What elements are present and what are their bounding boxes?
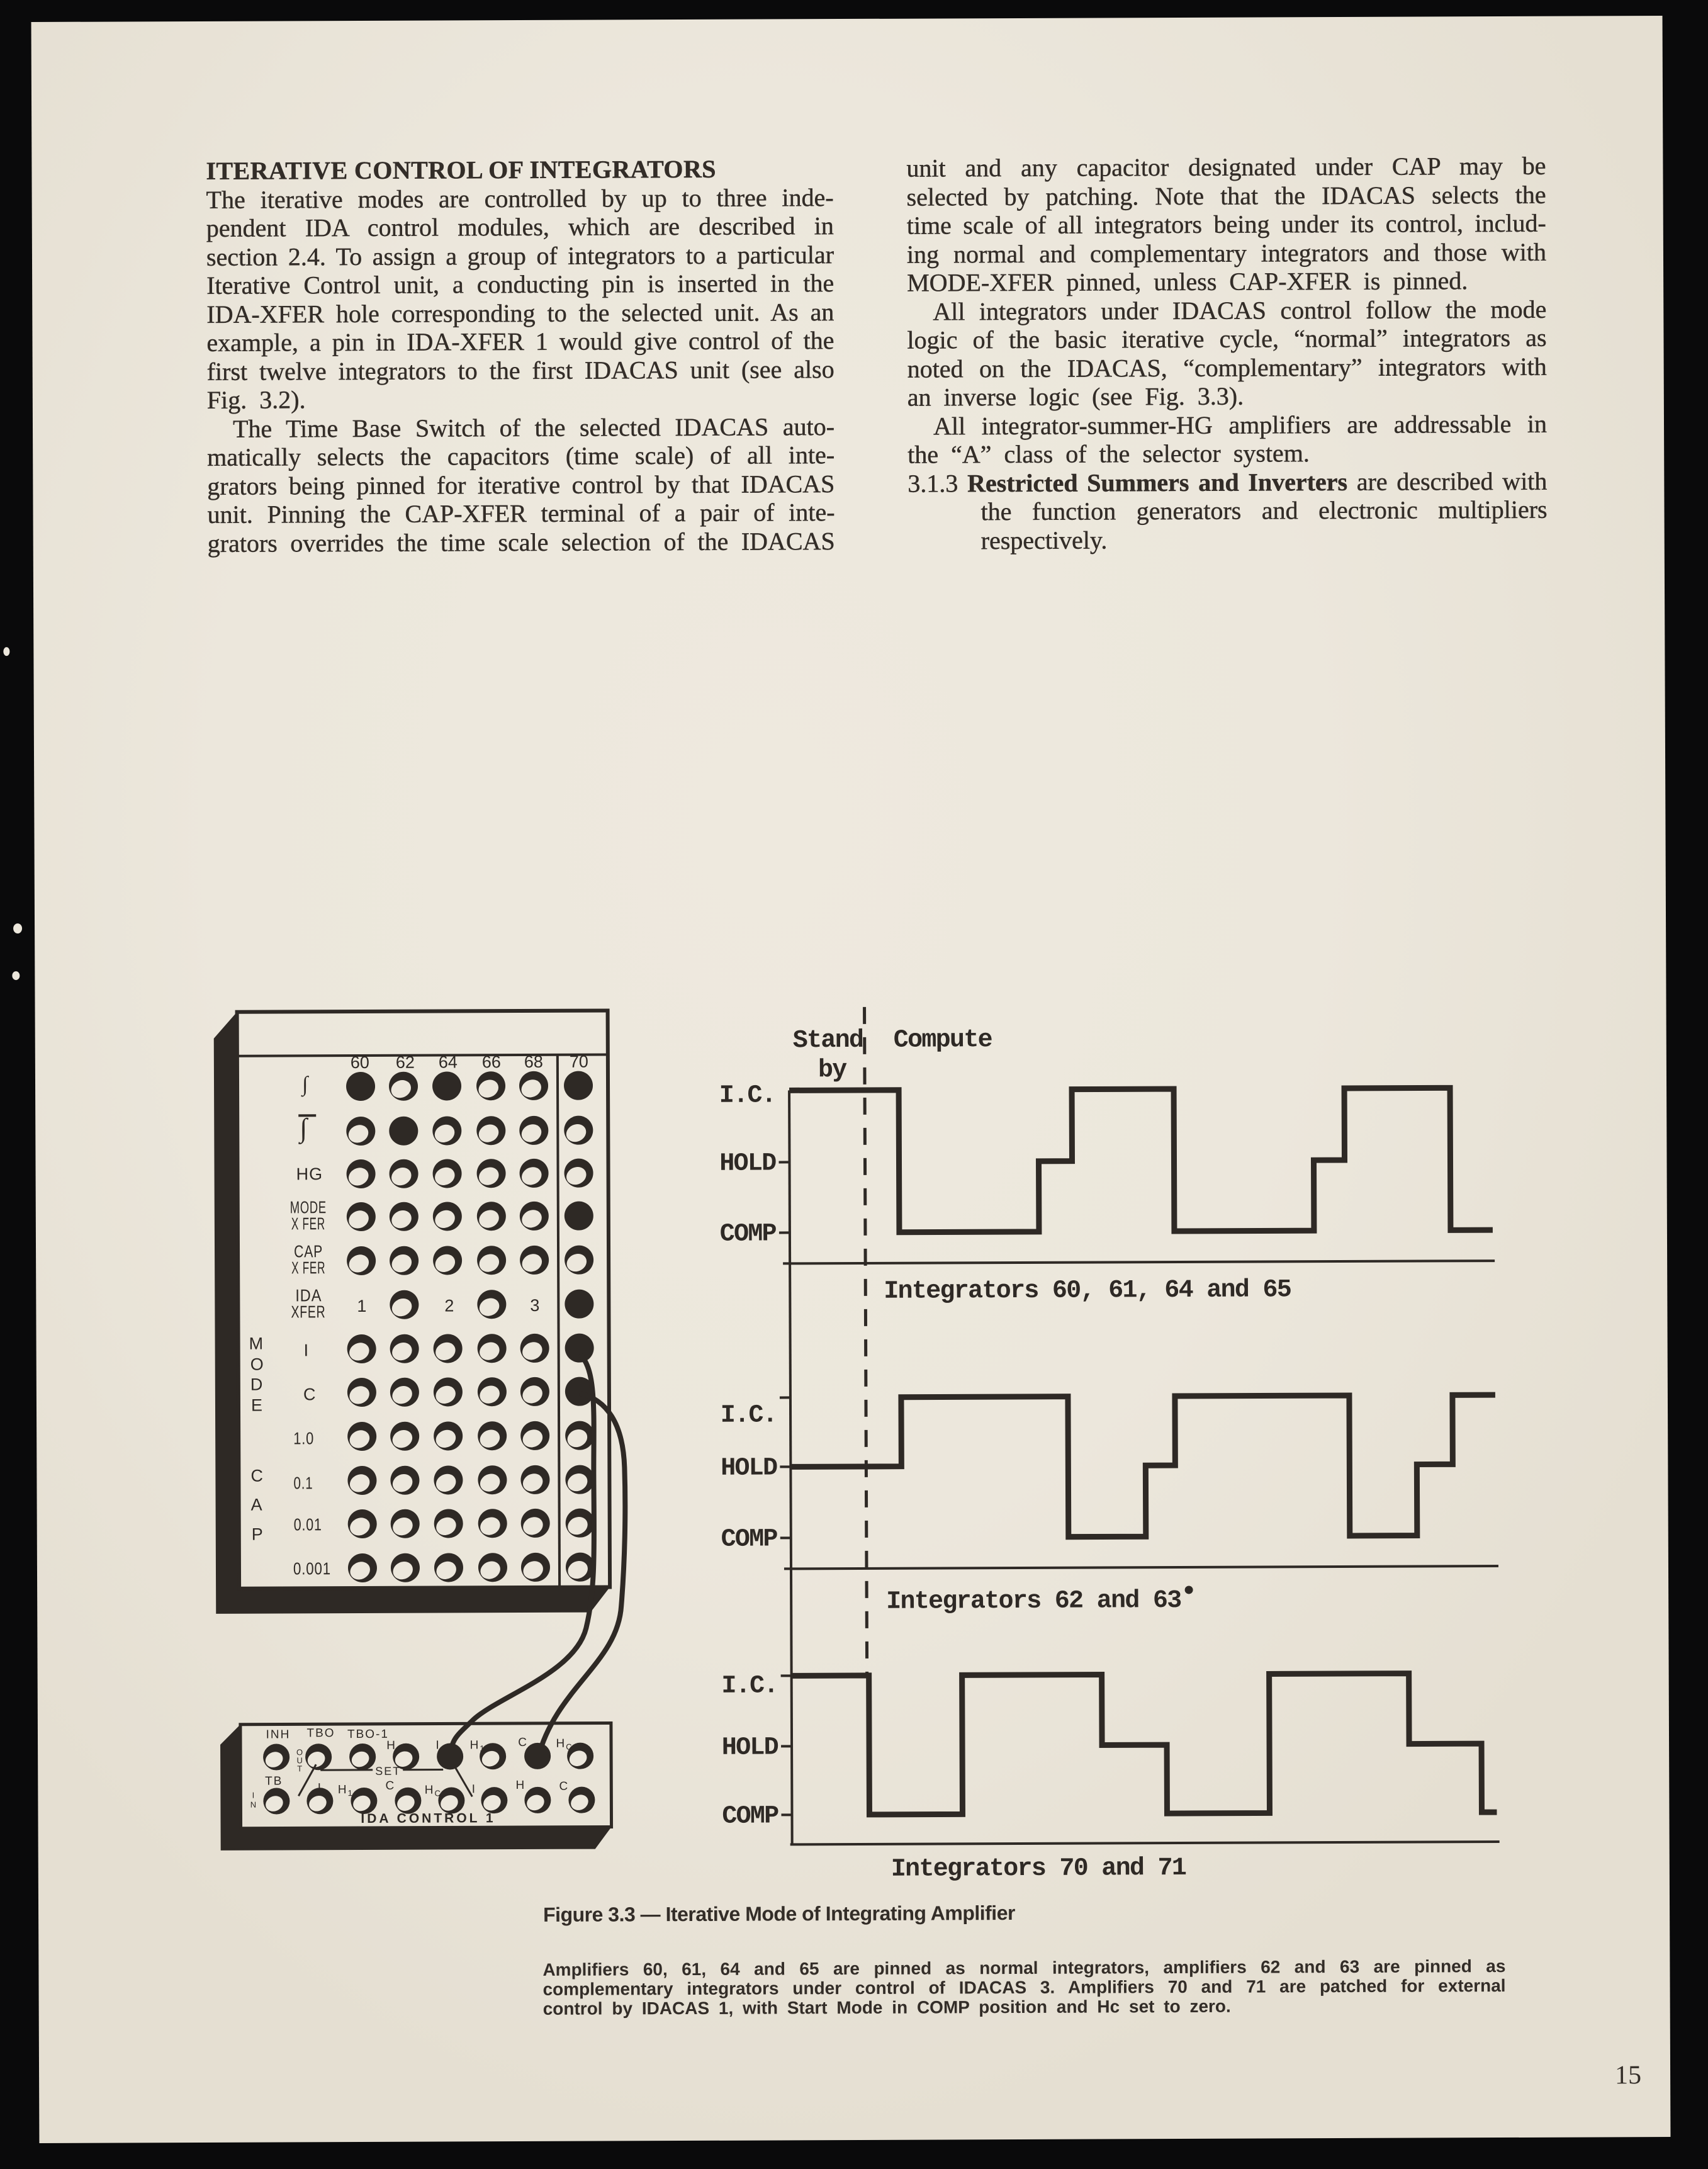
svg-text:3: 3 [530, 1296, 540, 1315]
svg-text:Integrators 62 and 63: Integrators 62 and 63 [886, 1587, 1181, 1616]
svg-text:C: C [385, 1779, 395, 1793]
svg-text:I: I [318, 1781, 322, 1794]
svg-text:I.C.: I.C. [719, 1081, 775, 1110]
svg-text:C: C [559, 1780, 569, 1793]
svg-text:2: 2 [444, 1296, 454, 1315]
svg-text:H1: H1 [338, 1783, 354, 1798]
svg-text:66: 66 [482, 1052, 501, 1071]
svg-text:HC: HC [425, 1784, 442, 1798]
svg-text:62: 62 [396, 1053, 415, 1072]
svg-text:TBO: TBO [306, 1727, 335, 1740]
svg-text:Integrators 70 and 71: Integrators 70 and 71 [891, 1854, 1186, 1884]
svg-text:Stand: Stand [793, 1027, 863, 1055]
svg-text:X FER: X FER [291, 1214, 325, 1233]
svg-text:0.1: 0.1 [293, 1473, 313, 1492]
svg-text:X FER: X FER [291, 1258, 325, 1277]
svg-text:70: 70 [570, 1052, 588, 1071]
svg-text:HG: HG [296, 1164, 323, 1183]
svg-text:INH: INH [266, 1728, 291, 1741]
svg-text:I: I [252, 1791, 256, 1800]
svg-text:TB: TB [265, 1774, 283, 1788]
svg-text:A: A [251, 1496, 263, 1514]
svg-text:60: 60 [351, 1053, 369, 1072]
svg-text:HOLD: HOLD [719, 1149, 776, 1178]
svg-text:Integrators 60, 61, 64 and 65: Integrators 60, 61, 64 and 65 [884, 1276, 1291, 1305]
svg-text:COMP: COMP [720, 1220, 777, 1248]
svg-text:O: O [250, 1355, 264, 1374]
svg-text:H: H [386, 1739, 396, 1752]
svg-text:∫: ∫ [301, 1073, 310, 1097]
svg-text:HOLD: HOLD [721, 1454, 777, 1482]
svg-text:I: I [435, 1739, 440, 1752]
svg-text:COMP: COMP [722, 1802, 778, 1830]
svg-text:P: P [252, 1525, 264, 1544]
svg-text:H1: H1 [470, 1738, 486, 1753]
svg-text:M: M [249, 1334, 264, 1353]
svg-text:Compute: Compute [894, 1026, 992, 1055]
svg-text:N: N [250, 1800, 257, 1810]
svg-text:64: 64 [439, 1052, 458, 1071]
svg-text:I: I [304, 1341, 310, 1360]
svg-text:COMP: COMP [721, 1525, 778, 1553]
svg-text:HOLD: HOLD [722, 1733, 778, 1762]
svg-text:T: T [297, 1764, 303, 1773]
svg-text:I.C.: I.C. [721, 1672, 777, 1700]
svg-text:SET: SET [375, 1765, 401, 1777]
svg-text:∫: ∫ [298, 1113, 308, 1144]
svg-text:H: H [515, 1779, 525, 1792]
svg-text:C: C [250, 1467, 264, 1485]
svg-text:1: 1 [357, 1297, 367, 1315]
svg-text:HC: HC [556, 1737, 573, 1752]
svg-text:by: by [818, 1056, 847, 1084]
svg-text:XFER: XFER [291, 1302, 325, 1321]
svg-text:0.01: 0.01 [294, 1515, 322, 1534]
svg-text:68: 68 [524, 1052, 543, 1071]
svg-text:I: I [472, 1783, 476, 1796]
svg-text:C: C [518, 1736, 528, 1749]
svg-text:0.001: 0.001 [293, 1559, 331, 1578]
svg-text:IDA CONTROL 1: IDA CONTROL 1 [361, 1811, 495, 1826]
svg-text:1.0: 1.0 [293, 1429, 314, 1448]
svg-text:C: C [303, 1385, 317, 1404]
svg-text:E: E [251, 1396, 263, 1415]
svg-text:I.C.: I.C. [721, 1401, 777, 1429]
svg-text:D: D [250, 1375, 264, 1394]
svg-text:TBO-1: TBO-1 [347, 1728, 389, 1741]
